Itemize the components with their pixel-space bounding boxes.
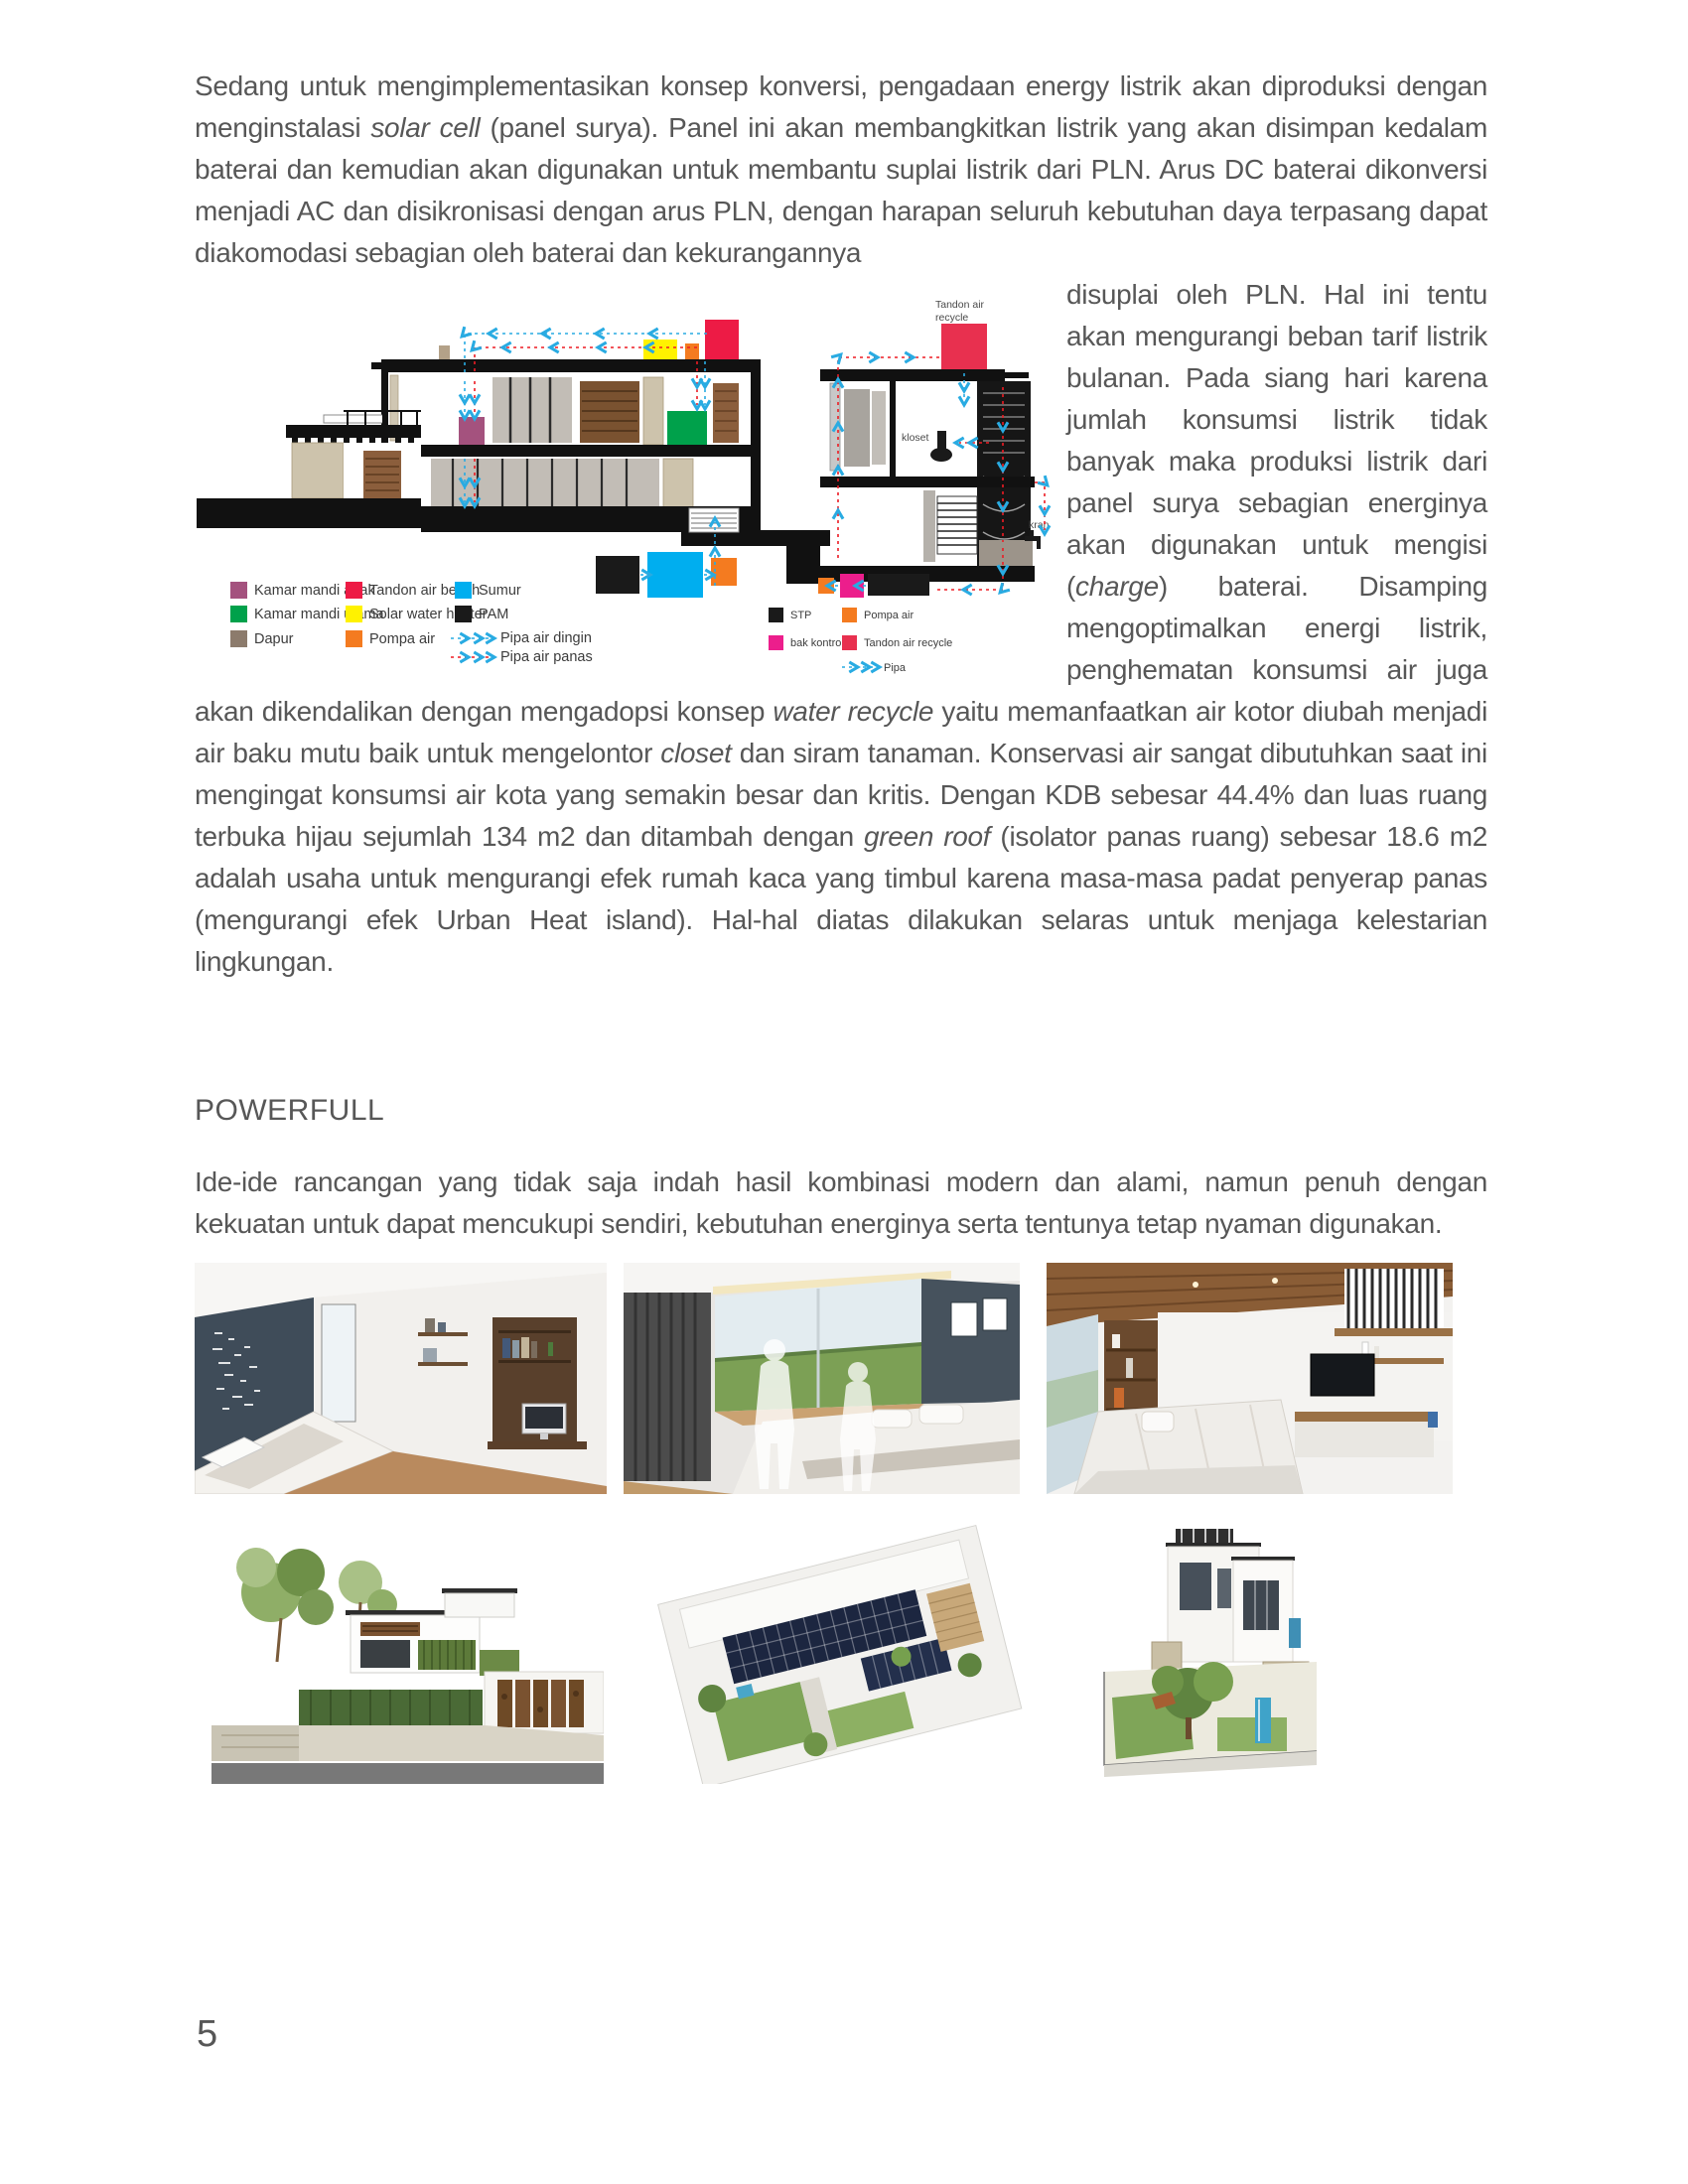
plumbing-section-diagram: Tandon air recycle kloset <box>195 292 1056 681</box>
tandon-recycle-label: Tandon air <box>935 299 985 311</box>
toilet-icon <box>930 431 952 462</box>
kamar-mandi-anak-square <box>459 417 485 445</box>
render-street-facade <box>211 1523 604 1784</box>
tv <box>1311 1354 1374 1396</box>
photo-master-bedroom <box>624 1263 1020 1494</box>
stp-square <box>868 574 929 596</box>
render-aerial-solar-roof <box>635 1523 1041 1784</box>
svg-text:PAM: PAM <box>479 607 508 622</box>
photo-kids-bedroom <box>195 1263 607 1494</box>
document-page: Sedang untuk mengimplementasikan konsep … <box>0 0 1688 2184</box>
kloset-label: kloset <box>902 432 929 444</box>
svg-text:Tandon air recycle: Tandon air recycle <box>864 637 952 649</box>
legend-swatch <box>230 582 247 599</box>
svg-text:Kamar mandi utama: Kamar mandi utama <box>254 607 384 622</box>
render-corner-aerial <box>1068 1523 1355 1784</box>
pipa-label: Pipa <box>884 662 907 674</box>
sumur-square <box>647 552 703 598</box>
window <box>322 1304 355 1422</box>
photo-living-room <box>1047 1263 1453 1494</box>
paragraph-powerfull: Ide-ide rancangan yang tidak saja indah … <box>195 1161 1487 1245</box>
svg-text:Sumur: Sumur <box>479 583 521 599</box>
svg-text:STP: STP <box>790 610 811 621</box>
solar-water-heater-square <box>643 340 677 359</box>
kran-label: kran <box>1029 519 1050 531</box>
tandon-air-recycle-square <box>941 324 987 369</box>
left-house-section <box>197 320 830 598</box>
section-heading: POWERFULL <box>195 1094 1487 1128</box>
roof-pergola <box>1176 1529 1233 1545</box>
pipa-dingin-label: Pipa air dingin <box>500 630 592 646</box>
legend-left: Kamar mandi anak Kamar mandi utama Dapur… <box>230 582 593 665</box>
page-content: Sedang untuk mengimplementasikan konsep … <box>195 66 1487 1784</box>
svg-text:Pompa air: Pompa air <box>864 610 914 621</box>
pompa-air-square <box>685 343 699 359</box>
gallery-row-interiors <box>195 1263 1487 1494</box>
section-diagram-svg: Tandon air recycle kloset <box>195 292 1056 681</box>
wood-gate-panels <box>497 1680 584 1727</box>
road <box>211 1761 604 1784</box>
svg-text:Pompa air: Pompa air <box>369 631 435 647</box>
page-number: 5 <box>197 2013 217 2056</box>
svg-text:bak kontrol: bak kontrol <box>790 637 844 649</box>
pompa-air-square-3 <box>818 578 834 594</box>
svg-text:Dapur: Dapur <box>254 631 294 647</box>
pipa-panas-label: Pipa air panas <box>500 649 593 665</box>
svg-text:recycle: recycle <box>935 312 968 324</box>
pam-square <box>596 556 639 594</box>
right-house-section: Tandon air recycle kloset <box>786 299 1050 598</box>
legend-right: STP Pompa air bak kontrol Tandon air rec… <box>769 608 952 674</box>
kamar-mandi-utama-square <box>667 411 707 445</box>
paragraph-intro: Sedang untuk mengimplementasikan konsep … <box>195 66 1487 274</box>
tandon-air-bersih-square <box>705 320 739 359</box>
bak-kontrol-square <box>840 574 864 598</box>
gallery-row-exteriors <box>195 1523 1487 1784</box>
